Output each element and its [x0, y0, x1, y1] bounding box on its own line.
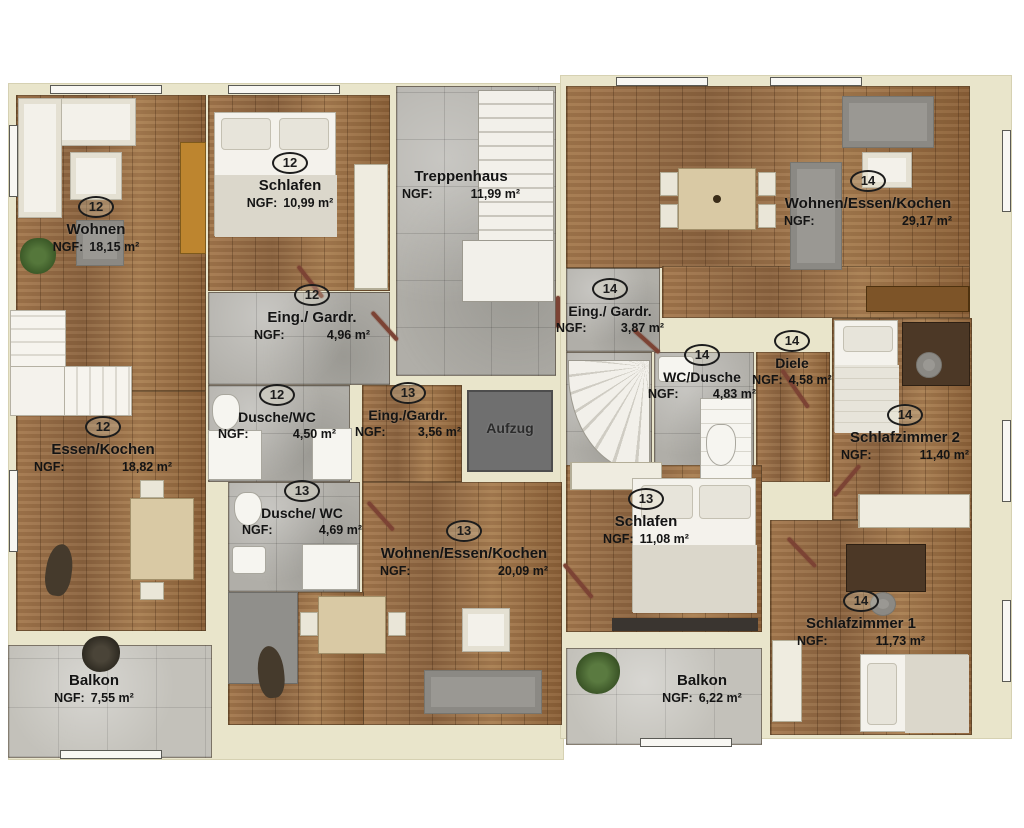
room-area: 4,96 m²	[327, 328, 370, 342]
window	[1002, 130, 1011, 212]
dining-table-icon	[318, 596, 386, 654]
room-area: 3,87 m²	[621, 321, 664, 335]
room-area: 11,08 m²	[640, 532, 689, 546]
wardrobe-icon	[354, 164, 388, 290]
unit-badge: 12	[85, 416, 121, 438]
room-area: 11,40 m²	[920, 448, 969, 462]
coffee-table-icon	[462, 608, 510, 652]
unit-badge: 14	[774, 330, 810, 352]
window	[9, 125, 18, 197]
room-name: Aufzug	[486, 420, 533, 436]
room-area: 4,83 m²	[713, 387, 756, 401]
window	[228, 85, 340, 94]
wardrobe-icon	[772, 640, 802, 722]
chair-icon	[660, 204, 678, 228]
unit-badge: 13	[284, 480, 320, 502]
room-name: Treppenhaus	[414, 168, 507, 185]
kitchen-counter-icon	[10, 366, 66, 416]
chair-icon	[758, 172, 776, 196]
room-name: Eing./Gardr.	[368, 407, 447, 423]
label-schlafzimmer-1: 14 Schlafzimmer 1 NGF:11,73 m²	[794, 590, 928, 648]
unit-badge: 12	[78, 196, 114, 218]
room-name: Dusche/WC	[238, 409, 316, 425]
label-wek-14: 14 Wohnen/Essen/Kochen NGF:29,17 m²	[780, 170, 956, 228]
label-eing-14: 14 Eing./ Gardr. NGF:3,87 m²	[552, 278, 668, 335]
room-area: 4,58 m²	[789, 373, 832, 387]
unit-badge: 12	[259, 384, 295, 406]
unit-badge: 14	[887, 404, 923, 426]
sofa-icon	[842, 96, 934, 148]
room-area: 20,09 m²	[498, 564, 548, 578]
label-dusche-13: 13 Dusche/ WC NGF:4,69 m²	[238, 480, 366, 537]
label-diele-14: 14 Diele NGF:4,58 m²	[748, 330, 836, 387]
chair-icon	[300, 612, 318, 636]
window	[50, 85, 162, 94]
room-area: 7,55 m²	[91, 691, 134, 705]
desk-chair-icon	[916, 352, 942, 378]
sink-icon	[232, 546, 266, 574]
room-area: 10,99 m²	[283, 196, 333, 210]
window	[9, 470, 18, 552]
room-area: 4,69 m²	[319, 523, 362, 537]
room-area: 18,82 m²	[122, 460, 172, 474]
sideboard-icon	[612, 618, 758, 631]
room-area: 4,50 m²	[293, 427, 336, 441]
label-schlafzimmer-2: 14 Schlafzimmer 2 NGF:11,40 m²	[838, 404, 972, 462]
unit-badge: 14	[843, 590, 879, 612]
chair-icon	[140, 480, 164, 498]
label-schlafen-12: 12 Schlafen NGF:10,99 m²	[228, 152, 352, 210]
room-area: 11,73 m²	[876, 634, 925, 648]
room-area: 11,99 m²	[471, 187, 520, 201]
room-name: WC/Dusche	[663, 369, 741, 385]
unit-badge: 14	[684, 344, 720, 366]
coffee-table-icon	[70, 152, 122, 200]
window	[1002, 600, 1011, 682]
label-aufzug: Aufzug	[467, 420, 553, 436]
kitchen-counter-icon	[64, 366, 132, 416]
room-name: Wohnen/Essen/Kochen	[381, 545, 547, 562]
window	[1002, 420, 1011, 502]
chair-icon	[388, 612, 406, 636]
room-name: Diele	[775, 355, 808, 371]
dining-table-icon	[130, 498, 194, 580]
room-name: Balkon	[677, 672, 727, 689]
bed-icon	[860, 654, 968, 732]
stair-landing	[462, 240, 554, 302]
room-name: Essen/Kochen	[51, 441, 154, 458]
room-name: Balkon	[69, 672, 119, 689]
chair-icon	[758, 204, 776, 228]
chair-icon	[660, 172, 678, 196]
label-dusche-12: 12 Dusche/WC NGF:4,50 m²	[214, 384, 340, 441]
unit-badge: 13	[628, 488, 664, 510]
label-wek-13: 13 Wohnen/Essen/Kochen NGF:20,09 m²	[376, 520, 552, 578]
wardrobe-icon	[858, 494, 970, 528]
window	[770, 77, 862, 86]
unit-badge: 12	[294, 284, 330, 306]
room-name: Schlafzimmer 1	[806, 615, 916, 632]
toilet-icon	[706, 424, 736, 466]
label-balkon-right: Balkon NGF:6,22 m²	[644, 672, 760, 705]
window	[616, 77, 708, 86]
unit-badge: 12	[272, 152, 308, 174]
kitchen-counter-icon	[866, 286, 970, 312]
shower-icon	[302, 544, 358, 590]
label-essen-12: 12 Essen/Kochen NGF:18,82 m²	[30, 416, 176, 474]
room-name: Dusche/ WC	[261, 505, 343, 521]
room-area: 29,17 m²	[902, 214, 952, 228]
room-name: Schlafen	[259, 177, 322, 194]
room-name: Wohnen/Essen/Kochen	[785, 195, 951, 212]
room-area: 3,56 m²	[418, 425, 461, 439]
label-wohnen-12: 12 Wohnen NGF:18,15 m²	[36, 196, 156, 254]
room-area: 6,22 m²	[699, 691, 742, 705]
unit-badge: 13	[446, 520, 482, 542]
room-name: Wohnen	[67, 221, 126, 238]
floor-plan: 12 Wohnen NGF:18,15 m² 12 Schlafen NGF:1…	[0, 0, 1024, 828]
unit-badge: 14	[592, 278, 628, 300]
room-name: Schlafzimmer 2	[850, 429, 960, 446]
unit-badge: 13	[390, 382, 426, 404]
label-eing-12: 12 Eing./ Gardr. NGF:4,96 m²	[250, 284, 374, 342]
chair-icon	[140, 582, 164, 600]
label-balkon-left: Balkon NGF:7,55 m²	[36, 672, 152, 705]
label-eing-13: 13 Eing./Gardr. NGF:3,56 m²	[352, 382, 464, 439]
dining-table-icon	[678, 168, 756, 230]
kitchen-counter-icon	[10, 310, 66, 368]
room-name: Eing./ Gardr.	[267, 309, 356, 326]
desk-icon	[846, 544, 926, 592]
room-name: Schlafen	[615, 513, 678, 530]
label-treppenhaus: Treppenhaus NGF:11,99 m²	[398, 168, 524, 201]
window	[640, 738, 732, 747]
cabinet-icon	[180, 142, 206, 254]
label-wc-dusche-14: 14 WC/Dusche NGF:4,83 m²	[644, 344, 760, 401]
window	[60, 750, 162, 759]
room-area: 18,15 m²	[89, 240, 139, 254]
sofa-icon	[424, 670, 542, 714]
unit-badge: 14	[850, 170, 886, 192]
label-schlafen-13: 13 Schlafen NGF:11,08 m²	[586, 488, 706, 546]
room-name: Eing./ Gardr.	[568, 303, 651, 319]
